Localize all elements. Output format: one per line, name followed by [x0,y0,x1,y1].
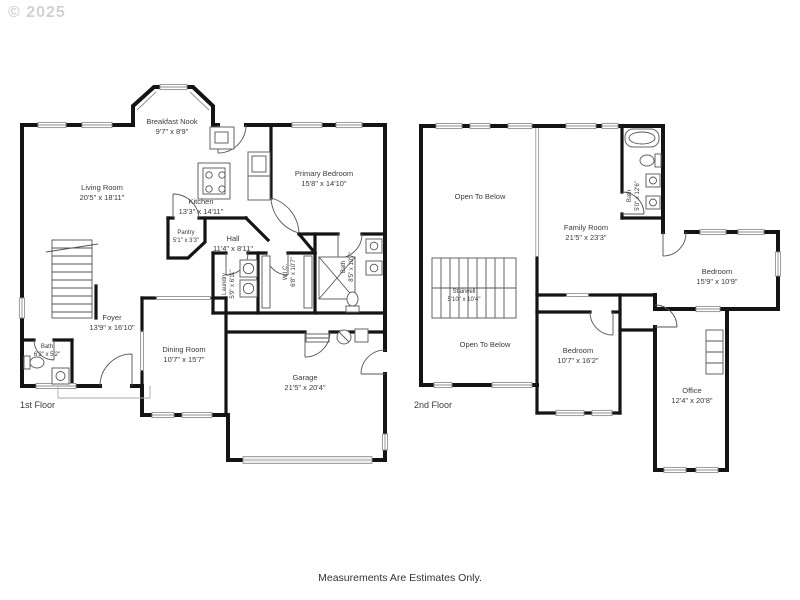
railing [536,128,539,256]
room-label-pantry: Pantry 5'1" x 3'3" [173,229,199,245]
disclaimer-text: Measurements Are Estimates Only. [0,572,800,584]
room-label-primary-bath: Bath 8'5" x 10'7" [340,252,356,282]
room-name: Laundry [221,273,229,295]
room-name: Breakfast Nook [146,117,197,127]
kitchen-island [198,163,230,199]
room-label-garage: Garage 21'5" x 20'4" [284,373,325,393]
room-name: Bath [626,190,634,202]
washer-dryer-icon [240,260,257,297]
room-name: Open To Below [460,340,511,350]
room-name: Primary Bedroom [295,169,353,179]
room-dims: 9'7" x 8'9" [156,127,189,137]
first-floor-plan [19,84,387,463]
room-dims: 5'9" x 6'11" [229,269,237,298]
floor-plan-page: © 2025 [0,0,800,600]
room-dims: 21'5" x 20'4" [284,383,325,393]
room-label-family-room: Family Room 21'5" x 23'3" [564,223,608,243]
room-label-hall: Hall 11'4" x 8'11" [213,234,253,254]
room-dims: 12'4" x 20'8" [671,396,712,406]
room-label-bath-2: Bath 5'0" x 12'6" [626,181,642,211]
room-dims: 10'7" x 15'7" [163,355,204,365]
room-name: Foyer [102,313,121,323]
room-dims: 15'8" x 14'10" [301,179,346,189]
vanity-sinks-icon [366,239,382,275]
room-name: Bath [340,261,348,273]
room-name: Bath [41,343,53,351]
room-label-stairwell: Stairwell 5'10" x 10'4" [448,288,481,304]
room-name: Open To Below [455,192,506,202]
room-label-laundry: Laundry 5'9" x 6'11" [221,269,237,298]
room-name: Stairwell [453,288,476,296]
toilet-icon [640,154,661,167]
room-dims: 11'4" x 8'11" [213,244,253,254]
stairs-icon [46,240,98,318]
second-floor-caption: 2nd Floor [414,400,452,410]
closet-icon [706,330,723,374]
room-dims: 10'7" x 16'2" [557,356,598,366]
room-dims: 13'3" x 14'11" [179,207,224,217]
room-label-dining-room: Dining Room 10'7" x 15'7" [162,345,205,365]
bathtub-icon [625,129,659,147]
room-dims: 5'1" x 3'3" [173,237,199,245]
room-dims: 20'5" x 18'11" [80,193,125,203]
room-label-breakfast-nook: Breakfast Nook 9'7" x 8'9" [146,117,197,137]
room-label-bath: Bath 6'2" x 5'2" [34,343,60,359]
room-name: Living Room [81,183,123,193]
room-dims: 8'5" x 10'7" [348,252,356,282]
garage-door [243,457,372,464]
room-label-foyer: Foyer 13'9" x 16'10" [89,313,134,333]
room-name: Pantry [177,229,194,237]
room-dims: 13'9" x 16'10" [89,323,134,333]
room-name: Bedroom [702,267,732,277]
room-dims: 15'9" x 10'9" [696,277,737,287]
room-label-primary-bedroom: Primary Bedroom 15'8" x 14'10" [295,169,353,189]
room-name: Office [682,386,701,396]
room-name: Garage [292,373,317,383]
room-name: Kitchen [188,197,213,207]
room-label-kitchen: Kitchen 13'3" x 14'11" [179,197,224,217]
second-floor-doors [590,192,686,335]
room-label-open-to-below-lower: Open To Below [460,340,511,350]
room-label-living-room: Living Room 20'5" x 18'11" [80,183,125,203]
toilet-icon [346,292,359,312]
room-label-bedroom-right: Bedroom 15'9" x 10'9" [696,267,737,287]
room-dims: 6'2" x 5'2" [34,351,60,359]
first-floor-caption: 1st Floor [20,400,55,410]
room-name: Dining Room [162,345,205,355]
room-name: Family Room [564,223,608,233]
room-name: Hall [227,234,240,244]
room-label-office: Office 12'4" x 20'8" [671,386,712,406]
room-dims: 6'8" x 10'7" [290,257,298,287]
floorplan-drawing [0,0,800,600]
room-name: W.I.C. [282,264,290,280]
room-dims: 5'0" x 12'6" [634,181,642,211]
room-label-bedroom-mid: Bedroom 10'7" x 16'2" [557,346,598,366]
room-label-open-to-below-upper: Open To Below [455,192,506,202]
room-dims: 5'10" x 10'4" [448,296,481,304]
room-dims: 21'5" x 23'3" [565,233,606,243]
room-name: Bedroom [563,346,593,356]
sink-icon [52,368,69,384]
room-label-wic: W.I.C. 6'8" x 10'7" [282,257,298,287]
vanity-sinks-icon [646,174,660,209]
